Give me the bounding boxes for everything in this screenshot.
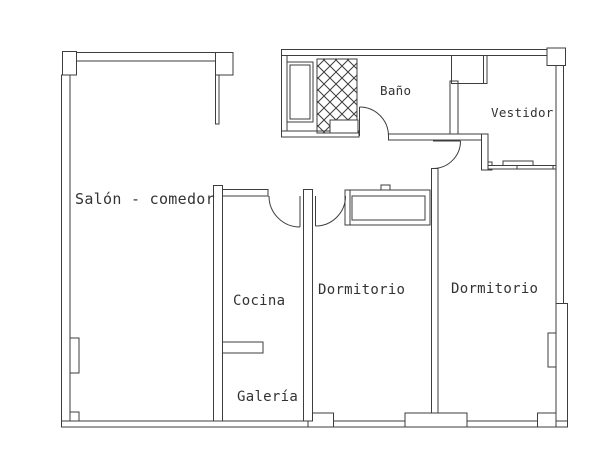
dormitorio2-door-jamb [482,134,489,170]
floor-plan-drawing: Salón - comedor Baño Vestidor Cocina Dor… [0,0,600,450]
sliding-door-panel-1 [503,161,533,166]
room-label-dormitorio1: Dormitorio [318,282,405,298]
room-label-vestidor: Vestidor [491,105,554,120]
duct-shaft [452,56,488,84]
top-right-pillar [547,48,566,66]
cocina-top-wall [223,190,269,197]
hall-top-wall [389,134,486,140]
right-wall-pilaster [548,333,556,367]
wardrobe-inner [352,196,425,220]
sliding-door-panel-2 [517,166,553,170]
right-wall-lower [556,304,568,428]
entry-pillar [216,53,234,76]
bano-door-swing-arc [360,107,389,136]
room-label-cocina: Cocina [233,293,285,309]
shower-step [330,120,358,133]
dormitorio1-dormitorio2-wall [432,169,439,414]
top-wall-left [77,53,216,62]
fixtures [287,59,553,225]
left-wall [62,75,71,427]
cocina-galeria-wall [223,342,264,353]
wardrobe-handle-bump [381,185,390,190]
cocina-dormitorio1-wall [304,190,313,422]
bath-fixture-outer [287,62,313,122]
room-label-dormitorio2: Dormitorio [451,281,538,297]
left-wall-pilaster-lower [70,412,79,421]
bottom-window-pier-3 [538,413,557,427]
room-label-bano: Baño [380,83,411,98]
room-label-galeria: Galería [237,389,298,405]
room-label-salon: Salón - comedor [75,190,215,208]
right-wall-upper [556,66,564,304]
top-left-pillar [63,52,77,76]
cocina-door-swing-arc [269,196,300,227]
dormitorio1-door-swing-arc [316,196,346,226]
top-wall-right [282,50,548,56]
entry-stub-wall [216,75,220,124]
dormitorio2-door-swing-arc [433,141,461,169]
bottom-window-pier-2 [405,413,467,427]
bano-left-wall [282,56,288,138]
bath-fixture-inner [290,65,310,119]
floor-plan: Salón - comedor Baño Vestidor Cocina Dor… [0,0,600,450]
bano-vestidor-wall [450,81,458,134]
salon-divider-wall [214,186,223,422]
left-wall-pilaster-upper [70,338,79,373]
